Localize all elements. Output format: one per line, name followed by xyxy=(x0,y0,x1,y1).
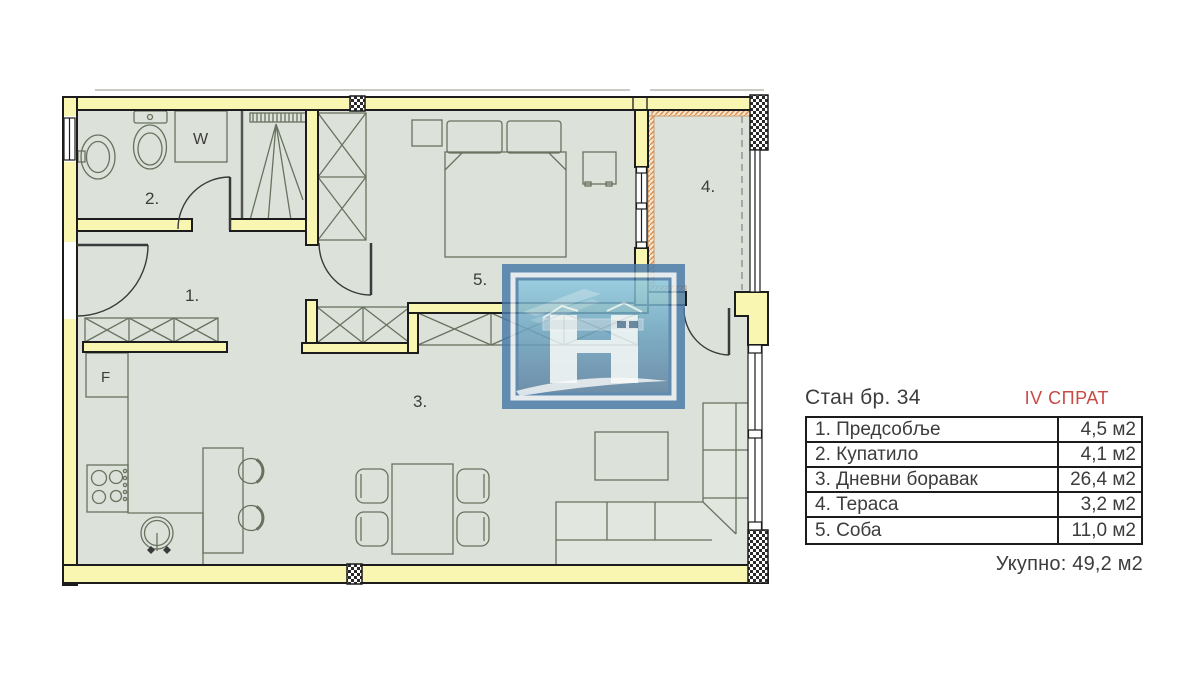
wall-bath-south-a xyxy=(77,219,192,231)
context-lines xyxy=(95,78,764,90)
room-area: 11,0 м2 xyxy=(1057,518,1141,543)
room-label-5: 5. xyxy=(473,270,487,289)
panel-header: Стан бр. 34 IV СПРАТ xyxy=(805,386,1143,410)
apartment-info-panel: Стан бр. 34 IV СПРАТ 1. Предсобље 4,5 м2… xyxy=(805,386,1143,576)
area-table: 1. Предсобље 4,5 м2 2. Купатило 4,1 м2 3… xyxy=(805,416,1143,545)
pillar xyxy=(748,530,768,583)
wall-bottom xyxy=(63,565,768,583)
apartment-title: Стан бр. 34 xyxy=(805,386,921,410)
bedroom-terrace-window xyxy=(636,167,647,248)
room-label-2: 2. xyxy=(145,189,159,208)
total-area: Укупно: 49,2 м2 xyxy=(805,553,1143,576)
room-area: 4,5 м2 xyxy=(1057,418,1141,441)
room-label-3: 3. xyxy=(413,392,427,411)
wall-bed-west xyxy=(306,110,318,245)
wall-left xyxy=(63,97,77,585)
room-area: 26,4 м2 xyxy=(1057,468,1141,491)
washer-label: W xyxy=(193,131,209,148)
watermark-logo xyxy=(502,264,685,409)
living-room-window xyxy=(748,345,762,530)
room-name: 5. Соба xyxy=(807,518,1057,543)
fridge-label: F xyxy=(101,369,110,386)
wall-bath-south-b xyxy=(230,219,318,231)
floor-label: IV СПРАТ xyxy=(1025,388,1143,409)
pillar xyxy=(750,95,768,150)
bathroom-window xyxy=(64,118,75,160)
area-table-row: 1. Предсобље 4,5 м2 xyxy=(807,418,1141,443)
wall-band-left xyxy=(302,343,410,353)
room-name: 2. Купатило xyxy=(807,443,1057,466)
room-name: 3. Дневни боравак xyxy=(807,468,1057,491)
wall-top xyxy=(70,97,752,110)
area-table-row: 2. Купатило 4,1 м2 xyxy=(807,443,1141,468)
room-name: 1. Предсобље xyxy=(807,418,1057,441)
terrace-railing xyxy=(750,150,760,292)
area-table-row: 3. Дневни боравак 26,4 м2 xyxy=(807,468,1141,493)
area-table-row: 5. Соба 11,0 м2 xyxy=(807,518,1141,543)
room-label-4: 4. xyxy=(701,177,715,196)
wall-bed-east-upper xyxy=(635,110,648,167)
pillar xyxy=(350,96,365,111)
room-area: 4,1 м2 xyxy=(1057,443,1141,466)
area-table-row: 4. Тераса 3,2 м2 xyxy=(807,493,1141,518)
floor-plan-page: 1. 2. 3. 4. 5. W F Стан бр. 34 IV СПРАТ … xyxy=(0,0,1200,675)
room-area: 3,2 м2 xyxy=(1057,493,1141,516)
room-label-1: 1. xyxy=(185,286,199,305)
wall-band-hall xyxy=(83,342,227,352)
room-name: 4. Тераса xyxy=(807,493,1057,516)
wall-bed-west-lower xyxy=(306,300,317,343)
pillar xyxy=(347,564,362,584)
floor-plan: 1. 2. 3. 4. 5. W F xyxy=(55,78,780,593)
